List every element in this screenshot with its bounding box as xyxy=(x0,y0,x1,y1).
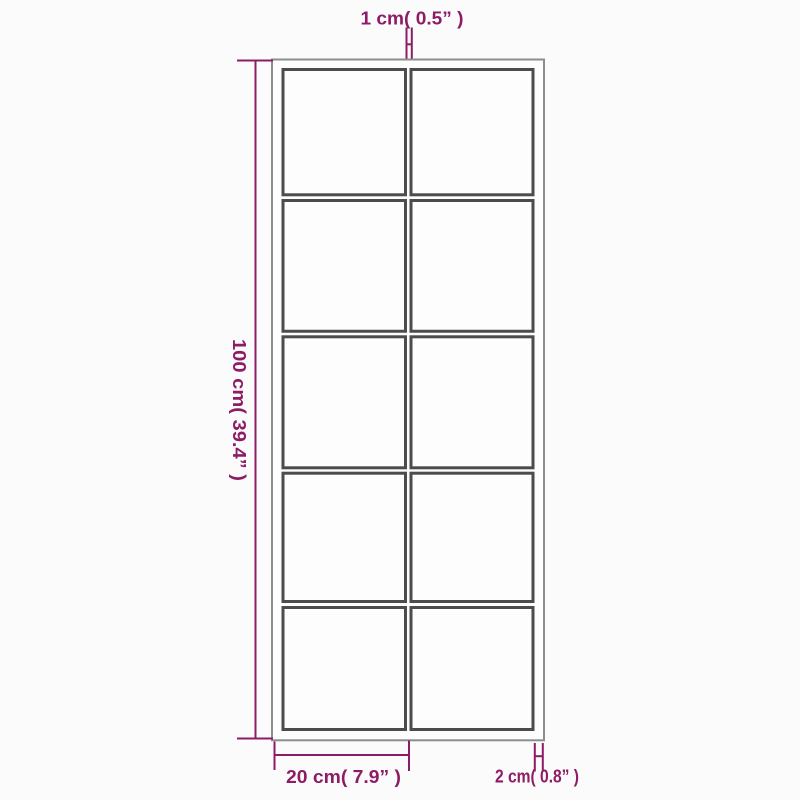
svg-text:100 cm( 39.4” ): 100 cm( 39.4” ) xyxy=(229,339,249,481)
svg-text:2 cm( 0.8” ): 2 cm( 0.8” ) xyxy=(495,767,579,787)
svg-text:1 cm( 0.5” ): 1 cm( 0.5” ) xyxy=(361,9,464,29)
svg-text:20 cm( 7.9” ): 20 cm( 7.9” ) xyxy=(286,767,401,787)
